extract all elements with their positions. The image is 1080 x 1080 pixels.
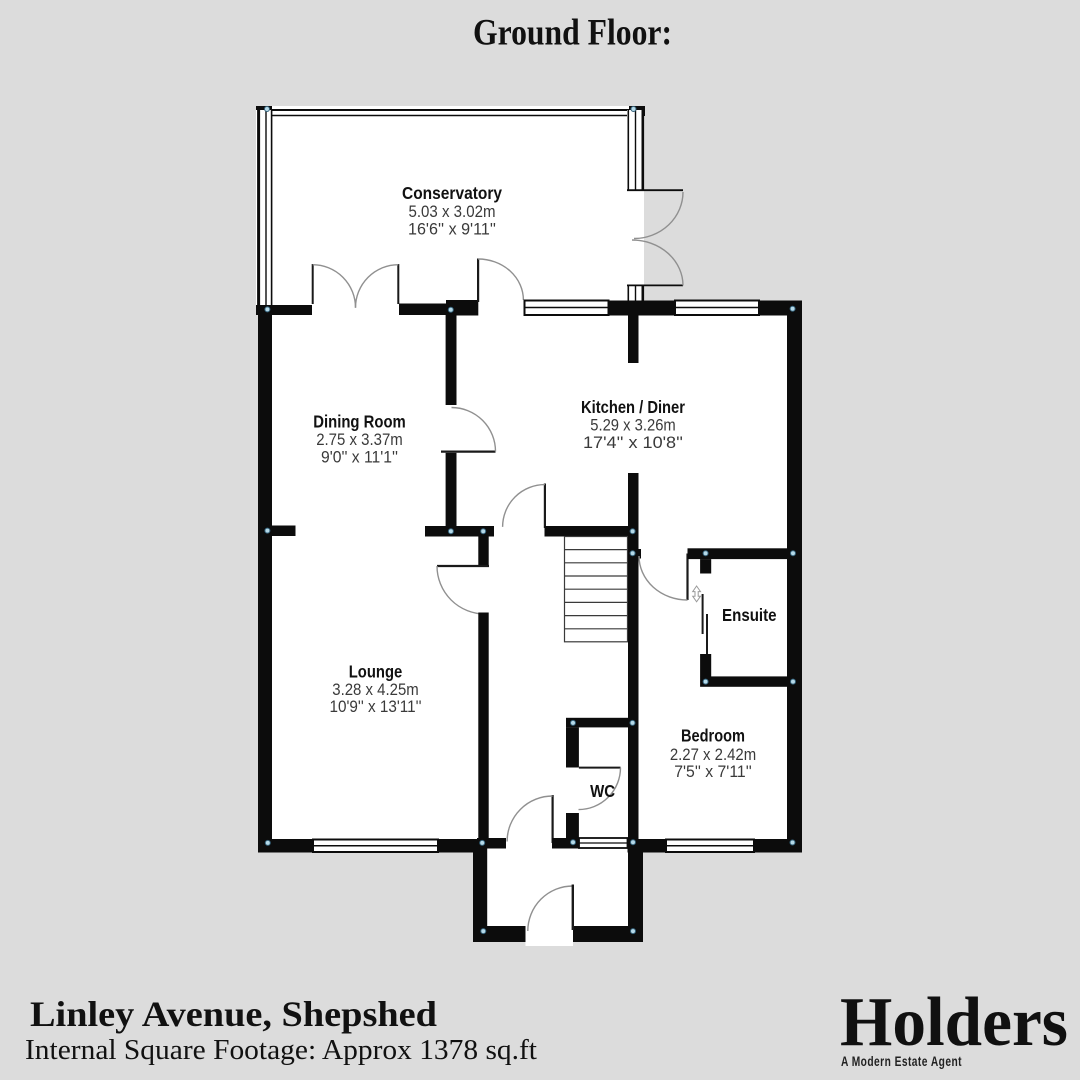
svg-text:Ensuite: Ensuite	[722, 605, 777, 625]
svg-text:A Modern Estate Agent: A Modern Estate Agent	[841, 1054, 962, 1069]
svg-text:2.75 x 3.37m: 2.75 x 3.37m	[316, 431, 403, 449]
svg-text:WC: WC	[590, 781, 615, 801]
svg-text:Ground Floor:: Ground Floor:	[473, 11, 672, 52]
svg-text:3.28 x 4.25m: 3.28 x 4.25m	[332, 681, 419, 699]
svg-text:7'5'' x 7'11'': 7'5'' x 7'11''	[674, 763, 752, 781]
svg-text:5.29 x 3.26m: 5.29 x 3.26m	[590, 417, 676, 435]
svg-text:Conservatory: Conservatory	[402, 183, 502, 203]
svg-text:Dining Room: Dining Room	[313, 412, 406, 432]
svg-text:Linley Avenue, Shepshed: Linley Avenue, Shepshed	[30, 994, 437, 1034]
svg-text:9'0'' x 11'1'': 9'0'' x 11'1''	[321, 449, 398, 467]
svg-text:Bedroom: Bedroom	[681, 726, 745, 746]
svg-text:Kitchen / Diner: Kitchen / Diner	[581, 397, 685, 417]
svg-text:5.03 x 3.02m: 5.03 x 3.02m	[409, 203, 496, 221]
svg-text:16'6'' x 9'11'': 16'6'' x 9'11''	[408, 221, 496, 239]
svg-text:Lounge: Lounge	[349, 662, 403, 682]
svg-text:10'9'' x 13'11'': 10'9'' x 13'11''	[330, 698, 422, 716]
svg-text:Internal Square Footage: Appro: Internal Square Footage: Approx 1378 sq.…	[25, 1035, 537, 1066]
svg-text:2.27 x 2.42m: 2.27 x 2.42m	[670, 746, 756, 764]
svg-text:17'4'' x 10'8'': 17'4'' x 10'8''	[583, 434, 683, 452]
svg-text:Holders: Holders	[840, 984, 1068, 1061]
